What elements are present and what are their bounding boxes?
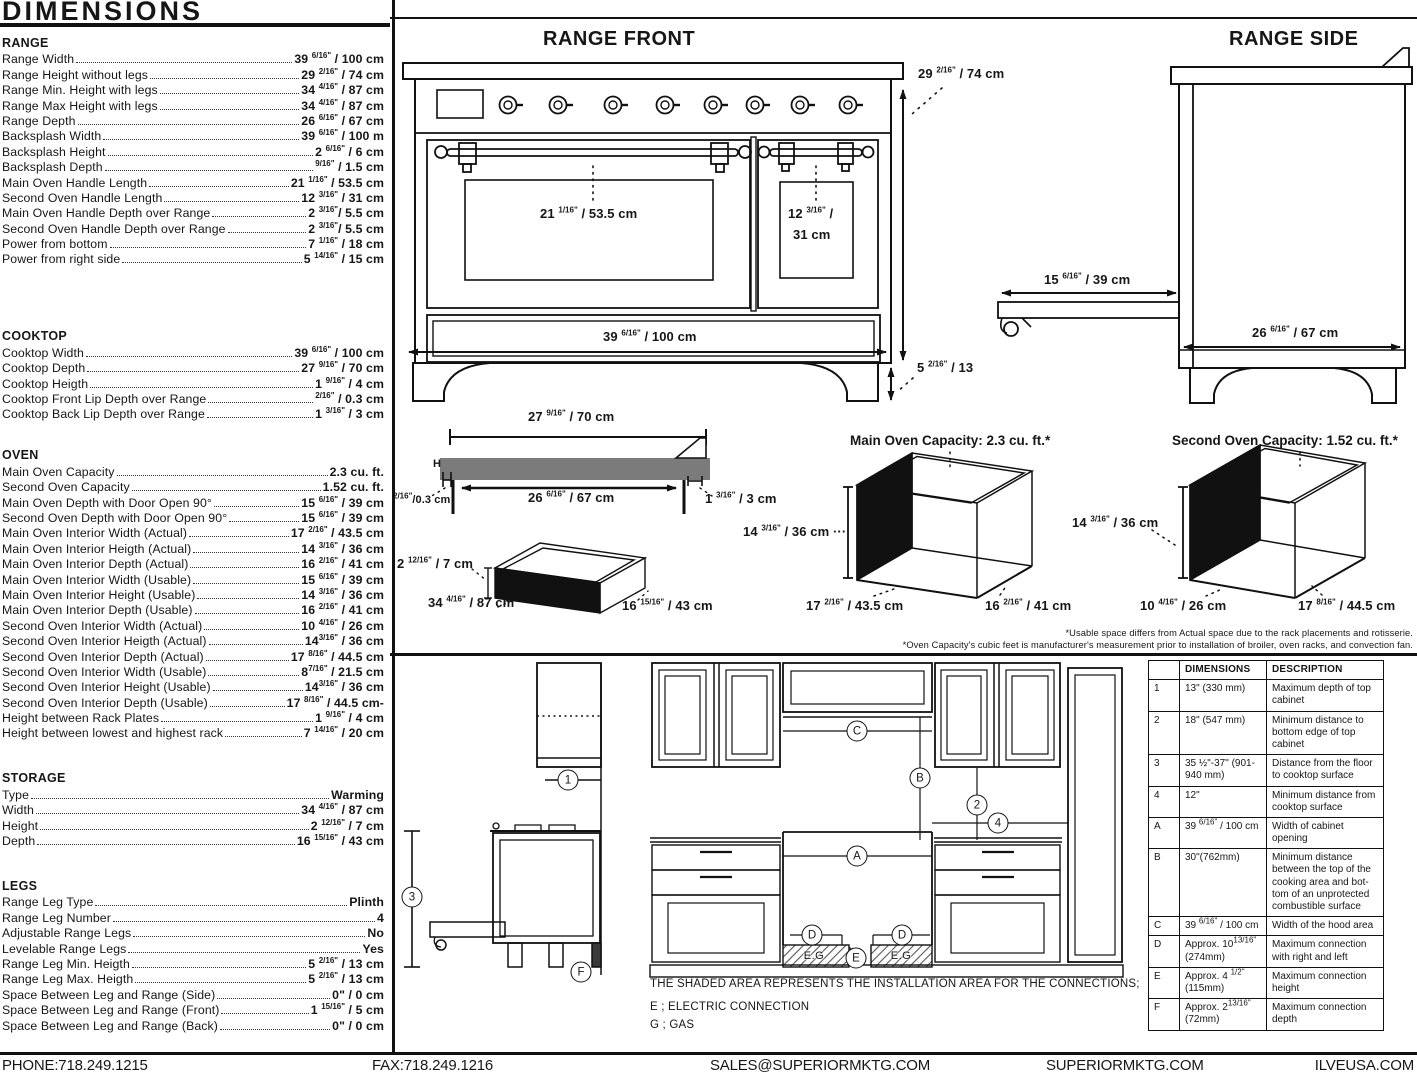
dim-second-oven-height: 14 3/16" / 36 cm (1072, 515, 1158, 530)
footer-divider (0, 1052, 1417, 1055)
dotted-leader (212, 216, 306, 217)
footnote-line: *Oven Capacity's cubic feet is manufactu… (903, 640, 1413, 652)
spec-label: Range Depth (2, 114, 76, 128)
footer-contact-item: ILVEUSA.COM (1315, 1057, 1414, 1074)
dotted-leader (160, 109, 300, 110)
spec-row: Second Oven Interior Height (Usable)143/… (2, 679, 384, 694)
spec-value: 16 2/16" / 41 cm (301, 557, 384, 571)
spec-row: Range Width39 6/16" / 100 cm (2, 51, 384, 66)
spec-row: Adjustable Range LegsNo (2, 925, 384, 940)
spec-label: Width (2, 803, 34, 817)
dotted-leader (110, 247, 307, 248)
callout-3: 3 (402, 887, 423, 908)
spec-row: Levelable Range LegsYes (2, 940, 384, 955)
spec-value: 2 6/16" / 6 cm (315, 145, 384, 159)
spec-value: 17 8/16" / 44.5 cm- (287, 696, 384, 710)
spec-row: Space Between Leg and Range (Side)0" / 0… (2, 986, 384, 1001)
dotted-leader (160, 93, 299, 94)
table-cell-id: A (1149, 817, 1180, 848)
spec-value: Warming (331, 788, 384, 802)
spec-label: Cooktop Width (2, 346, 84, 360)
spec-row: Backsplash Height2 6/16" / 6 cm (2, 143, 384, 158)
dotted-leader (195, 613, 300, 614)
spec-label: Second Oven Handle Length (2, 191, 162, 205)
table-cell-dimensions: 12" (1180, 786, 1267, 817)
table-body: 113" (330 mm)Maximum depth of top cabine… (1149, 680, 1384, 1030)
footer-contact-item: FAX:718.249.1216 (372, 1057, 493, 1074)
callout-E: E (846, 948, 867, 969)
spec-value: 5 2/16" / 13 cm (308, 972, 384, 986)
dotted-leader (161, 721, 313, 722)
spec-value: 7 1/16" / 18 cm (308, 237, 384, 251)
dotted-leader (128, 952, 360, 953)
spec-row: Range Max Height with legs34 4/16" / 87 … (2, 97, 384, 112)
dotted-leader (210, 706, 285, 707)
table-header-row: DIMENSIONSDESCRIPTION (1149, 661, 1384, 680)
table-cell-description: Minimum distance between the top of the … (1267, 849, 1384, 917)
footnote-line: *Usable space differs from Actual space … (903, 628, 1413, 640)
installation-dimensions-table: DIMENSIONSDESCRIPTION 113" (330 mm)Maxim… (1148, 660, 1384, 1031)
spec-value: 1.52 cu. ft. (323, 480, 384, 494)
spec-row: Height between Rack Plates1 9/16" / 4 cm (2, 710, 384, 725)
dim-second-handle-line2: 31 cm (793, 227, 830, 242)
footer-contact-item: SALES@SUPERIORMKTG.COM (710, 1057, 930, 1074)
dotted-leader (217, 998, 330, 999)
spec-label: Main Oven Handle Depth over Range (2, 206, 210, 220)
spec-row: Second Oven Interior Depth (Actual)17 8/… (2, 648, 384, 663)
spec-row: Depth16 15/16" / 43 cm (2, 833, 384, 848)
spec-value: 143/16" / 36 cm (305, 634, 384, 648)
spec-section-cooktop: COOKTOPCooktop Width39 6/16" / 100 cmCoo… (2, 329, 384, 421)
callout-D-left: D (802, 925, 823, 946)
dim-back-lip: 1 3/16" / 3 cm (705, 491, 777, 506)
spec-section-range: RANGERange Width39 6/16" / 100 cmRange H… (2, 36, 384, 266)
spec-value: 16 2/16" / 41 cm (301, 603, 384, 617)
dotted-leader (103, 139, 299, 140)
spec-row: Cooktop Width39 6/16" / 100 cm (2, 344, 384, 359)
spec-row: Power from bottom7 1/16" / 18 cm (2, 236, 384, 251)
dotted-leader (108, 155, 314, 156)
spec-row: Range Depth26 6/16" / 67 cm (2, 113, 384, 128)
callout-2: 2 (967, 795, 988, 816)
table-cell-id: E (1149, 967, 1180, 998)
callout-D-right: D (892, 925, 913, 946)
spec-value: 2/16" / 0.3 cm (315, 392, 384, 406)
spec-label: Main Oven Interior Depth (Usable) (2, 603, 193, 617)
spec-label: Second Oven Interior Height (Usable) (2, 680, 211, 694)
spec-row: Range Min. Height with legs34 4/16" / 87… (2, 82, 384, 97)
dotted-leader (76, 62, 292, 63)
dotted-leader (228, 232, 307, 233)
spec-row: Height between lowest and highest rack7 … (2, 725, 384, 740)
table-cell-id: D (1149, 936, 1180, 967)
spec-label: Main Oven Interior Height (Usable) (2, 588, 195, 602)
spec-label: Main Oven Interior Width (Actual) (2, 526, 187, 540)
table-cell-dimensions: 13" (330 mm) (1180, 680, 1267, 711)
spec-row: Main Oven Interior Depth (Actual)16 2/16… (2, 556, 384, 571)
spec-row: Main Oven Interior Width (Usable)15 6/16… (2, 571, 384, 586)
second-oven-capacity-title: Second Oven Capacity: 1.52 cu. ft.* (1172, 433, 1398, 448)
spec-value: 14 3/16" / 36 cm (301, 588, 384, 602)
callout-4: 4 (988, 813, 1009, 834)
dotted-leader (105, 170, 313, 171)
dim-front-lip: 2/16"/0.3 cm (393, 494, 450, 506)
dotted-leader (36, 813, 299, 814)
spec-row: Height2 12/16" / 7 cm (2, 817, 384, 832)
dotted-leader (213, 690, 303, 691)
spec-label: Space Between Leg and Range (Back) (2, 1019, 218, 1033)
spec-label: Second Oven Interior Depth (Usable) (2, 696, 208, 710)
dotted-leader (220, 1029, 330, 1030)
table-cell-dimensions: Approx. 1013/16" (274mm) (1180, 936, 1267, 967)
spec-value: 2 3/16"/ 5.5 cm (308, 206, 384, 220)
spec-row: Range Height without legs29 2/16" / 74 c… (2, 66, 384, 81)
dotted-leader (86, 356, 292, 357)
section-title: RANGE (2, 36, 384, 51)
dim-range-height: 29 2/16" / 74 cm (918, 66, 1004, 81)
dim-second-handle-line1: 12 3/16" / (788, 206, 833, 221)
spec-value: 4 (377, 911, 384, 925)
spec-label: Cooktop Front Lip Depth over Range (2, 392, 206, 406)
dotted-leader (117, 475, 328, 476)
spec-value: Yes (362, 942, 384, 956)
spec-label: Power from right side (2, 252, 120, 266)
spec-value: 15 6/16" / 39 cm (301, 573, 384, 587)
legend-gas: G ; GAS (650, 1019, 694, 1031)
spec-label: Main Oven Capacity (2, 465, 115, 479)
dim-main-handle: 21 1/16" / 53.5 cm (540, 206, 637, 221)
dim-main-oven-depth: 16 2/16" / 41 cm (985, 598, 1071, 613)
dotted-leader (190, 567, 299, 568)
spec-row: Main Oven Interior Depth (Usable)16 2/16… (2, 602, 384, 617)
spec-row: Main Oven Handle Length21 1/16" / 53.5 c… (2, 174, 384, 189)
spec-row: Second Oven Interior Width (Actual)10 4/… (2, 617, 384, 632)
table-cell-id: 1 (1149, 680, 1180, 711)
dotted-leader (208, 675, 299, 676)
spec-value: 1 3/16" / 3 cm (315, 407, 384, 421)
spec-value: 15 6/16" / 39 cm (301, 496, 384, 510)
table-cell-description: Minimum distance from cooktop surface (1267, 786, 1384, 817)
spec-row: Space Between Leg and Range (Back)0" / 0… (2, 1017, 384, 1032)
dotted-leader (214, 506, 299, 507)
dim-second-oven-depth: 17 8/16" / 44.5 cm (1298, 598, 1395, 613)
section-title: STORAGE (2, 771, 384, 786)
spec-value: 14 3/16" / 36 cm (301, 542, 384, 556)
dotted-leader (209, 644, 303, 645)
dotted-leader (37, 844, 295, 845)
spec-label: Second Oven Depth with Door Open 90° (2, 511, 227, 525)
dotted-leader (197, 598, 299, 599)
dotted-leader (150, 78, 299, 79)
spec-row: Second Oven Interior Heigth (Actual)143/… (2, 633, 384, 648)
main-oven-capacity-drawing (843, 452, 1032, 598)
spec-label: Height between Rack Plates (2, 711, 159, 725)
spec-value: 1 9/16" / 4 cm (315, 711, 384, 725)
spec-row: Backsplash Width39 6/16" / 100 m (2, 128, 384, 143)
table-cell-dimensions: 39 6/16" / 100 cm (1180, 917, 1267, 936)
spec-sections: RANGERange Width39 6/16" / 100 cmRange H… (2, 29, 384, 1033)
dim-cooktop-width: 27 9/16" / 70 cm (528, 409, 614, 424)
spec-value: 10 4/16" / 26 cm (301, 619, 384, 633)
spec-label: Levelable Range Legs (2, 942, 126, 956)
spec-section-legs: LEGSRange Leg TypePlinthRange Leg Number… (2, 879, 384, 1033)
spec-row: Cooktop Front Lip Depth over Range2/16" … (2, 391, 384, 406)
spec-row: Width34 4/16" / 87 cm (2, 802, 384, 817)
dotted-leader (149, 186, 289, 187)
spec-row: TypeWarming (2, 786, 384, 801)
spec-value: 0" / 0 cm (332, 1019, 384, 1033)
spec-label: Space Between Leg and Range (Side) (2, 988, 215, 1002)
spec-row: Main Oven Capacity2.3 cu. ft. (2, 463, 384, 478)
spec-label: Main Oven Interior Heigth (Actual) (2, 542, 191, 556)
section-title: OVEN (2, 448, 384, 463)
dotted-leader (208, 402, 313, 403)
callout-F: F (571, 962, 592, 983)
spec-row: Second Oven Handle Depth over Range2 3/1… (2, 220, 384, 235)
spec-label: Main Oven Interior Width (Usable) (2, 573, 191, 587)
spec-label: Range Max Height with legs (2, 99, 158, 113)
dotted-leader (40, 829, 309, 830)
table-cell-id: B (1149, 849, 1180, 917)
spec-label: Main Oven Interior Depth (Actual) (2, 557, 188, 571)
spec-row: Second Oven Interior Depth (Usable)17 8/… (2, 694, 384, 709)
spec-value: 17 8/16" / 44.5 cm (291, 650, 384, 664)
dotted-leader (189, 536, 289, 537)
spec-row: Space Between Leg and Range (Front)1 15/… (2, 1002, 384, 1017)
spec-value: 26 6/16" / 67 cm (301, 114, 384, 128)
spec-value: Plinth (349, 895, 384, 909)
dotted-leader (221, 1013, 308, 1014)
range-front-title: RANGE FRONT (543, 28, 695, 51)
table-cell-description: Distance from the floor to cooktop surfa… (1267, 755, 1384, 786)
spec-value: 1 9/16" / 4 cm (315, 377, 384, 391)
dotted-leader (31, 798, 329, 799)
spec-label: Adjustable Range Legs (2, 926, 131, 940)
table-row: FApprox. 213/16" (72mm)Maximum connectio… (1149, 999, 1384, 1030)
spec-value: 39 6/16" / 100 cm (294, 346, 384, 360)
table-cell-description: Maximum connection depth (1267, 999, 1384, 1030)
table-cell-id: 4 (1149, 786, 1180, 817)
callout-B: B (910, 768, 931, 789)
dim-leg-height: 5 2/16" / 13 (917, 360, 973, 375)
spec-label: Height (2, 819, 38, 833)
table-header-cell: DESCRIPTION (1267, 661, 1384, 680)
table-cell-description: Maximum connection height (1267, 967, 1384, 998)
table-header-cell (1149, 661, 1180, 680)
dotted-leader (207, 417, 313, 418)
spec-label: Second Oven Interior Width (Usable) (2, 665, 206, 679)
spec-label: Range Leg Max. Heigth (2, 972, 133, 986)
spec-label: Cooktop Depth (2, 361, 85, 375)
table-cell-id: 2 (1149, 711, 1180, 755)
range-side-title: RANGE SIDE (1229, 28, 1358, 51)
legend-electric: E ; ELECTRIC CONNECTION (650, 1001, 809, 1013)
spec-value: 29 2/16" / 74 cm (301, 68, 384, 82)
spec-value: 21 1/16" / 53.5 cm (291, 176, 384, 190)
dim-h-mark: H (433, 458, 441, 470)
spec-value: 5 14/16" / 15 cm (304, 252, 384, 266)
second-oven-capacity-drawing (1152, 445, 1365, 598)
table-row: C39 6/16" / 100 cmWidth of the hood area (1149, 917, 1384, 936)
spec-row: Second Oven Handle Length12 3/16" / 31 c… (2, 190, 384, 205)
spec-value: 1 15/16" / 5 cm (311, 1003, 384, 1017)
spec-label: Type (2, 788, 29, 802)
callout-1: 1 (558, 770, 579, 791)
table-cell-dimensions: 39 6/16" / 100 cm (1180, 817, 1267, 848)
spec-label: Height between lowest and highest rack (2, 726, 223, 740)
spec-value: 34 4/16" / 87 cm (301, 99, 384, 113)
spec-value: No (367, 926, 384, 940)
capacity-footnotes: *Usable space differs from Actual space … (903, 628, 1413, 651)
dotted-leader (113, 921, 375, 922)
spec-row: Cooktop Back Lip Depth over Range1 3/16"… (2, 406, 384, 421)
dim-drawer-depth: 16 15/16" / 43 cm (622, 598, 713, 613)
table-cell-dimensions: Approx. 4 1/2" (115mm) (1180, 967, 1267, 998)
table-cell-id: 3 (1149, 755, 1180, 786)
spec-row: Range Leg TypePlinth (2, 894, 384, 909)
spec-row: Second Oven Interior Width (Usable)87/16… (2, 664, 384, 679)
footer-contact-item: PHONE:718.249.1215 (2, 1057, 148, 1074)
spec-label: Main Oven Depth with Door Open 90° (2, 496, 212, 510)
table-cell-description: Maximum connection with right and left (1267, 936, 1384, 967)
spec-label: Second Oven Capacity (2, 480, 130, 494)
control-knobs (500, 97, 864, 114)
range-side-drawing (998, 48, 1412, 403)
table-row: 335 ½"-37" (901-940 mm)Distance from the… (1149, 755, 1384, 786)
spec-label: Second Oven Interior Heigth (Actual) (2, 634, 207, 648)
spec-label: Space Between Leg and Range (Front) (2, 1003, 219, 1017)
spec-label: Main Oven Handle Length (2, 176, 147, 190)
spec-row: Cooktop Depth27 9/16" / 70 cm (2, 360, 384, 375)
spec-value: 39 6/16" / 100 m (301, 129, 384, 143)
dotted-leader (193, 583, 299, 584)
dotted-leader (90, 387, 313, 388)
dotted-leader (87, 371, 299, 372)
install-side-view-drawing (404, 663, 601, 975)
spec-value: 16 15/16" / 43 cm (297, 834, 384, 848)
dotted-leader (193, 552, 299, 553)
installation-note: THE SHADED AREA REPRESENTS THE INSTALLAT… (650, 978, 1140, 990)
dim-side-depth: 26 6/16" / 67 cm (1252, 325, 1338, 340)
spec-row: Main Oven Interior Height (Usable)14 3/1… (2, 587, 384, 602)
spec-value: 2 12/16" / 7 cm (311, 819, 384, 833)
callout-C: C (847, 721, 868, 742)
section-title: COOKTOP (2, 329, 384, 344)
dim-drawer-height: 2 12/16" / 7 cm (397, 556, 473, 571)
table-cell-id: F (1149, 999, 1180, 1030)
table-cell-description: Maximum depth of top cabinet (1267, 680, 1384, 711)
spec-value: 39 6/16" / 100 cm (294, 52, 384, 66)
section-title: LEGS (2, 879, 384, 894)
spec-label: Range Height without legs (2, 68, 148, 82)
dim-main-oven-height: 14 3/16" / 36 cm ··· (743, 524, 846, 539)
footer-contact-item: SUPERIORMKTG.COM (1046, 1057, 1204, 1074)
spec-label: Power from bottom (2, 237, 108, 251)
spec-section-oven: OVENMain Oven Capacity2.3 cu. ft.Second … (2, 448, 384, 740)
table-row: 113" (330 mm)Maximum depth of top cabine… (1149, 680, 1384, 711)
dim-range-width: 39 6/16" / 100 cm (603, 329, 697, 344)
middle-section-divider (390, 653, 1417, 656)
spec-row: Cooktop Heigth1 9/16" / 4 cm (2, 375, 384, 390)
dotted-leader (225, 736, 302, 737)
dotted-leader (206, 660, 289, 661)
table-cell-description: Minimum distance to bottom edge of top c… (1267, 711, 1384, 755)
dotted-leader (164, 201, 299, 202)
table-cell-description: Width of the hood area (1267, 917, 1384, 936)
top-section-divider (390, 17, 1417, 19)
spec-label: Range Width (2, 52, 74, 66)
install-elevation-drawing (650, 663, 1123, 977)
table-row: 218" (547 mm)Minimum distance to bottom … (1149, 711, 1384, 755)
title-underline (0, 23, 390, 27)
spec-row: Second Oven Capacity1.52 cu. ft. (2, 479, 384, 494)
spec-label: Range Leg Min. Heigth (2, 957, 130, 971)
spec-label: Second Oven Handle Depth over Range (2, 222, 226, 236)
spec-label: Cooktop Heigth (2, 377, 88, 391)
table-header: DIMENSIONSDESCRIPTION (1149, 661, 1384, 680)
table-row: B30"(762mm)Minimum distance between the … (1149, 849, 1384, 917)
dotted-leader (132, 967, 306, 968)
table-row: A39 6/16" / 100 cmWidth of cabinet openi… (1149, 817, 1384, 848)
spec-row: Main Oven Handle Depth over Range2 3/16"… (2, 205, 384, 220)
spec-row: Range Leg Min. Heigth5 2/16" / 13 cm (2, 956, 384, 971)
spec-value: 2 3/16"/ 5.5 cm (308, 222, 384, 236)
electric-gas-area-label: E.G (804, 950, 824, 962)
spec-label: Range Min. Height with legs (2, 83, 158, 97)
callout-A: A (847, 846, 868, 867)
spec-label: Cooktop Back Lip Depth over Range (2, 407, 205, 421)
dim-cooktop-inner: 26 6/16" / 67 cm (528, 490, 614, 505)
spec-row: Main Oven Depth with Door Open 90°15 6/1… (2, 494, 384, 509)
table-row: DApprox. 1013/16" (274mm)Maximum connect… (1149, 936, 1384, 967)
dotted-leader (132, 490, 321, 491)
dim-drawer-width: 34 4/16" / 87 cm (428, 595, 514, 610)
spec-label: Backsplash Depth (2, 160, 103, 174)
spec-value: 87/16" / 21.5 cm (301, 665, 384, 679)
table-cell-dimensions: Approx. 213/16" (72mm) (1180, 999, 1267, 1030)
spec-value: 2.3 cu. ft. (330, 465, 384, 479)
table-row: EApprox. 4 1/2" (115mm)Maximum connectio… (1149, 967, 1384, 998)
dotted-leader (229, 521, 299, 522)
spec-value: 34 4/16" / 87 cm (301, 803, 384, 817)
spec-value: 7 14/16" / 20 cm (304, 726, 384, 740)
spec-label: Backsplash Height (2, 145, 106, 159)
spec-row: Range Leg Max. Heigth5 2/16" / 13 cm (2, 971, 384, 986)
table-cell-id: C (1149, 917, 1180, 936)
dim-main-oven-width: 17 2/16" / 43.5 cm (806, 598, 903, 613)
dotted-leader (78, 124, 300, 125)
dimensions-sheet: { "page": { "title": "DIMENSIONS" }, "sp… (0, 0, 1417, 1080)
spec-label: Range Leg Number (2, 911, 111, 925)
spec-value: 27 9/16" / 70 cm (301, 361, 384, 375)
spec-value: 12 3/16" / 31 cm (301, 191, 384, 205)
spec-label: Range Leg Type (2, 895, 93, 909)
electric-gas-area-label: E.G (891, 950, 911, 962)
dotted-leader (122, 262, 302, 263)
spec-row: Backsplash Depth9/16" / 1.5 cm (2, 159, 384, 174)
spec-row: Main Oven Interior Width (Actual)17 2/16… (2, 525, 384, 540)
spec-value: 9/16" / 1.5 cm (315, 160, 384, 174)
spec-row: Main Oven Interior Heigth (Actual)14 3/1… (2, 540, 384, 555)
spec-value: 0" / 0 cm (332, 988, 384, 1002)
spec-label: Second Oven Interior Depth (Actual) (2, 650, 204, 664)
spec-value: 15 6/16" / 39 cm (301, 511, 384, 525)
dim-second-oven-width: 10 4/16" / 26 cm (1140, 598, 1226, 613)
spec-value: 5 2/16" / 13 cm (308, 957, 384, 971)
spec-label: Depth (2, 834, 35, 848)
table-cell-dimensions: 18" (547 mm) (1180, 711, 1267, 755)
table-cell-dimensions: 30"(762mm) (1180, 849, 1267, 917)
